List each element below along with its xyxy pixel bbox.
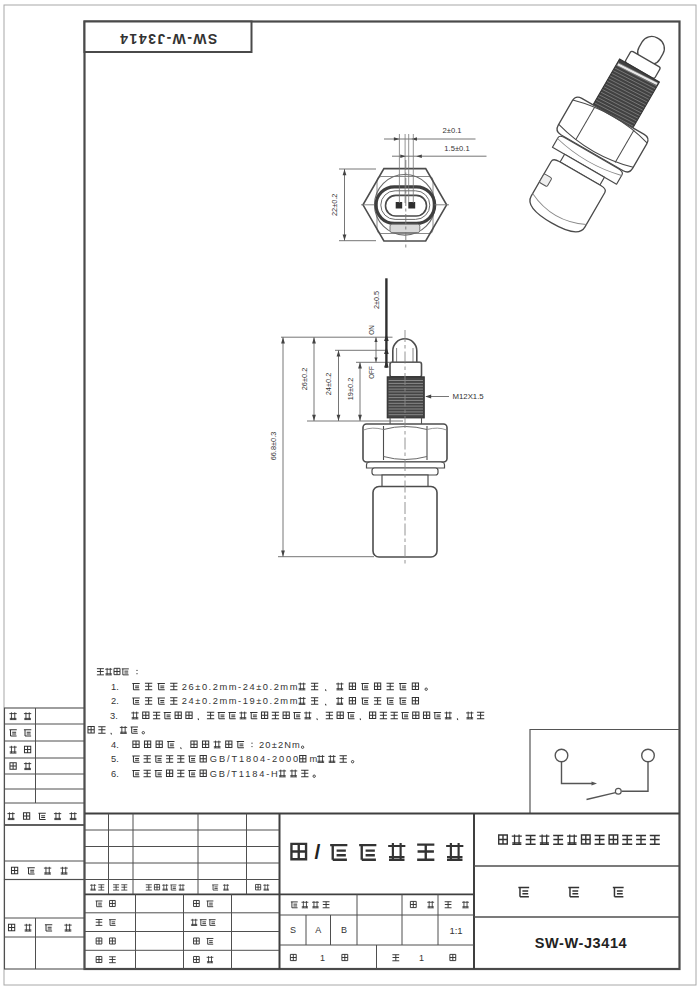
svg-text:24±0.2mm-19±0.2mm: 24±0.2mm-19±0.2mm <box>182 696 298 706</box>
svg-text:5.: 5. <box>111 754 119 764</box>
svg-text:4.: 4. <box>111 740 119 750</box>
svg-text:S: S <box>290 925 296 935</box>
svg-text:M12X1.5: M12X1.5 <box>453 392 485 401</box>
svg-text:B: B <box>341 925 347 935</box>
svg-text:2±0.5: 2±0.5 <box>372 291 381 309</box>
svg-text:2±0.1: 2±0.1 <box>443 126 462 135</box>
svg-text:66.8±0.3: 66.8±0.3 <box>269 432 278 461</box>
svg-text:26±0.2: 26±0.2 <box>300 368 309 391</box>
svg-text:A: A <box>315 925 321 935</box>
svg-text:22±0.2: 22±0.2 <box>331 194 340 217</box>
svg-text:SW-W-J3414: SW-W-J3414 <box>535 935 627 951</box>
svg-text:1: 1 <box>320 953 325 963</box>
svg-text:1.: 1. <box>111 682 119 692</box>
svg-text:1: 1 <box>419 953 424 963</box>
svg-text:1:1: 1:1 <box>449 925 462 936</box>
svg-text:2.: 2. <box>111 696 119 706</box>
svg-text:GB/T1804-2000: GB/T1804-2000 <box>210 754 298 764</box>
svg-text:19±0.2: 19±0.2 <box>346 378 355 401</box>
svg-text:6.: 6. <box>111 769 119 779</box>
svg-text:1.5±0.1: 1.5±0.1 <box>444 144 469 153</box>
svg-text:OFF: OFF <box>368 366 375 379</box>
svg-text:24±0.2: 24±0.2 <box>324 373 333 396</box>
svg-text:26±0.2mm-24±0.2mm: 26±0.2mm-24±0.2mm <box>182 682 298 692</box>
svg-text:m: m <box>309 754 317 764</box>
svg-text:3.: 3. <box>110 711 118 721</box>
svg-text:ON: ON <box>368 325 375 335</box>
svg-text:/: / <box>315 840 321 863</box>
svg-text:20±2Nm: 20±2Nm <box>259 740 300 750</box>
svg-text:GB/T1184-H: GB/T1184-H <box>210 769 278 779</box>
svg-text:SW-W-J3414: SW-W-J3414 <box>119 31 217 47</box>
